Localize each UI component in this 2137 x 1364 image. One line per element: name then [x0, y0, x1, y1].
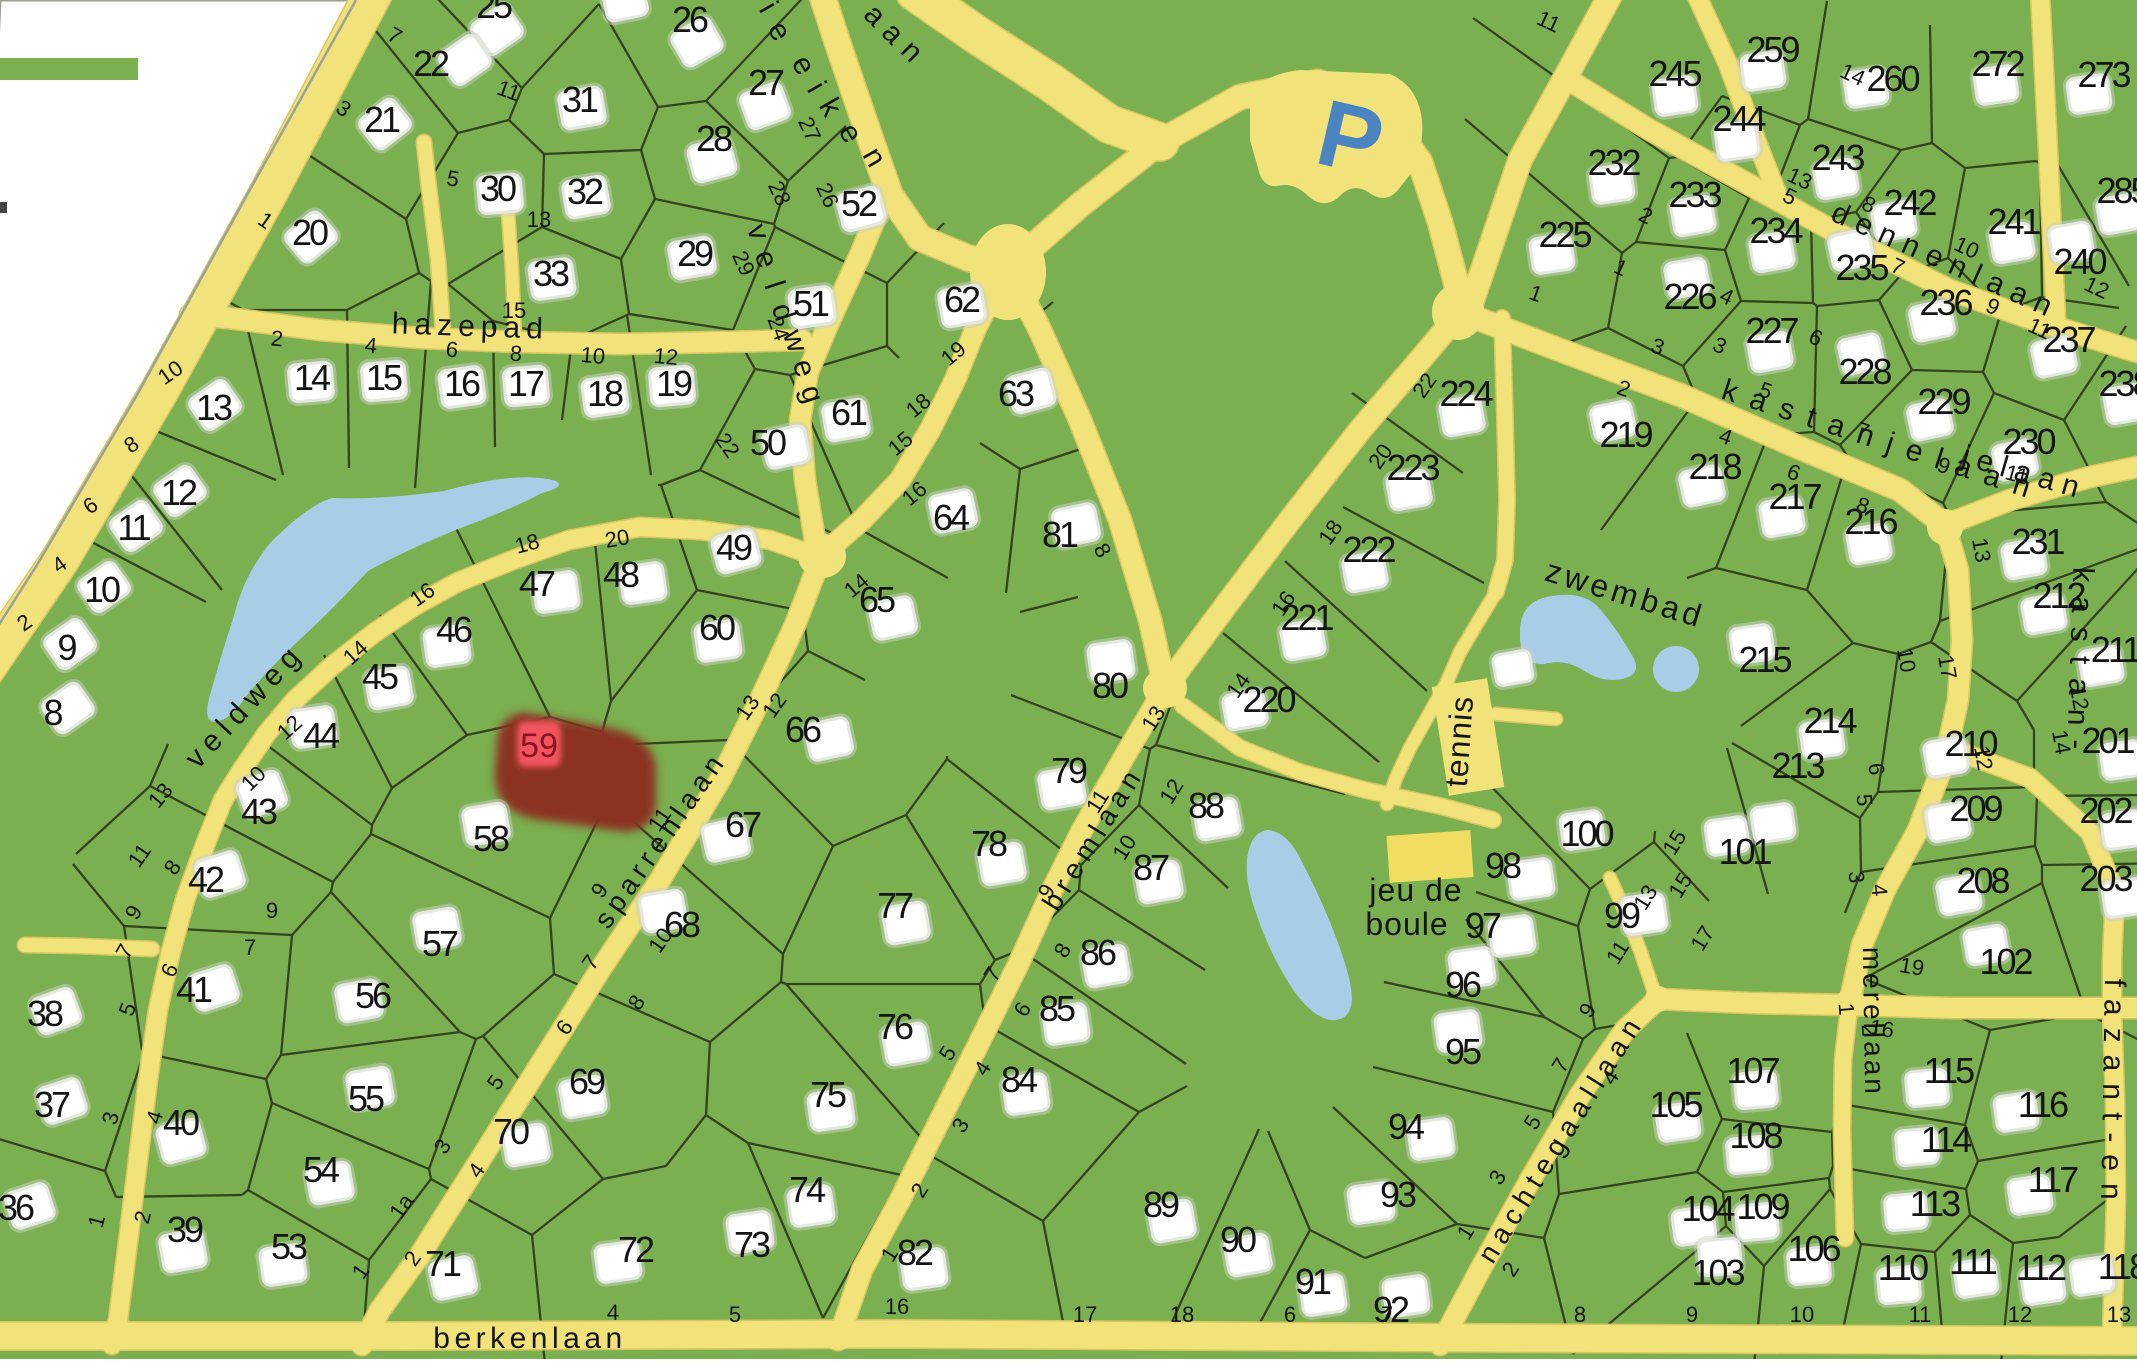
- svg-text:8: 8: [43, 692, 62, 733]
- svg-text:96: 96: [1445, 964, 1481, 1005]
- svg-text:233: 233: [1668, 174, 1721, 215]
- svg-text:116: 116: [2018, 1084, 2068, 1125]
- svg-text:208: 208: [1956, 860, 2009, 901]
- svg-text:90: 90: [1220, 1219, 1256, 1260]
- svg-text:45: 45: [362, 656, 398, 697]
- svg-text:222: 222: [1342, 529, 1395, 570]
- svg-text:20: 20: [292, 212, 328, 253]
- svg-text:235: 235: [1835, 247, 1888, 288]
- svg-text:228: 228: [1838, 351, 1891, 392]
- svg-text:214: 214: [1803, 700, 1856, 741]
- svg-text:6: 6: [1864, 762, 1890, 776]
- svg-text:117: 117: [2028, 1159, 2078, 1200]
- svg-text:91: 91: [1295, 1261, 1331, 1302]
- svg-text:227: 227: [1745, 310, 1798, 351]
- svg-text:79: 79: [1051, 750, 1087, 791]
- svg-text:26: 26: [672, 0, 708, 40]
- svg-text:67: 67: [725, 804, 761, 845]
- svg-text:10: 10: [580, 342, 607, 369]
- svg-text:7: 7: [244, 935, 256, 960]
- svg-text:97: 97: [1465, 905, 1501, 946]
- svg-text:77: 77: [877, 885, 913, 926]
- svg-text:202: 202: [2079, 790, 2132, 831]
- svg-text:106: 106: [1787, 1228, 1840, 1269]
- svg-text:69: 69: [569, 1061, 605, 1102]
- svg-text:5: 5: [729, 1302, 741, 1327]
- svg-text:15: 15: [366, 357, 402, 398]
- svg-text:50: 50: [750, 422, 786, 463]
- svg-text:48: 48: [603, 554, 639, 595]
- svg-text:229: 229: [1917, 381, 1970, 422]
- svg-text:12: 12: [161, 472, 197, 513]
- svg-text:231: 231: [2011, 521, 2064, 562]
- svg-text:243: 243: [1811, 137, 1864, 178]
- svg-text:12: 12: [2008, 1302, 2032, 1327]
- svg-text:10: 10: [84, 569, 120, 610]
- svg-text:114: 114: [1921, 1119, 1971, 1160]
- svg-text:54: 54: [303, 1149, 339, 1190]
- svg-text:1: 1: [1834, 1002, 1860, 1016]
- svg-text:4: 4: [364, 333, 378, 359]
- svg-text:29: 29: [677, 233, 713, 274]
- svg-text:13: 13: [1967, 536, 1996, 564]
- svg-text:41: 41: [176, 969, 212, 1010]
- svg-text:98: 98: [1485, 845, 1521, 886]
- svg-text:111: 111: [1949, 1241, 1997, 1282]
- svg-text:219: 219: [1599, 414, 1652, 455]
- svg-text:209: 209: [1949, 788, 2002, 829]
- svg-text:70: 70: [493, 1111, 529, 1152]
- svg-text:56: 56: [355, 975, 391, 1016]
- svg-text:merellaan: merellaan: [1857, 947, 1891, 1097]
- svg-text:17: 17: [508, 363, 544, 404]
- svg-text:234: 234: [1749, 210, 1802, 251]
- svg-text:55: 55: [348, 1078, 384, 1119]
- svg-text:63: 63: [998, 373, 1034, 414]
- svg-text:87: 87: [1133, 847, 1169, 888]
- svg-text:64: 64: [933, 497, 969, 538]
- svg-text:259: 259: [1746, 29, 1799, 70]
- svg-text:215: 215: [1738, 639, 1791, 680]
- svg-text:11: 11: [1909, 1302, 1932, 1327]
- svg-text:4: 4: [1867, 883, 1893, 897]
- svg-text:74: 74: [789, 1169, 825, 1210]
- svg-text:226: 226: [1663, 276, 1716, 317]
- svg-text:285: 285: [2096, 170, 2137, 211]
- svg-text:8: 8: [1574, 1302, 1586, 1327]
- svg-text:241: 241: [1987, 201, 2040, 242]
- svg-text:47: 47: [519, 563, 555, 604]
- svg-text:10: 10: [1790, 1302, 1814, 1327]
- svg-text:93: 93: [1380, 1174, 1416, 1215]
- svg-text:38: 38: [27, 993, 63, 1034]
- svg-text:203: 203: [2079, 858, 2132, 899]
- svg-text:21: 21: [364, 99, 400, 140]
- svg-text:12: 12: [653, 343, 680, 370]
- svg-text:102: 102: [1979, 941, 2032, 982]
- svg-text:kastan-: kastan-: [2060, 567, 2100, 764]
- svg-text:244: 244: [1712, 98, 1765, 139]
- svg-text:273: 273: [2077, 54, 2130, 95]
- svg-text:78: 78: [971, 823, 1007, 864]
- svg-text:18: 18: [1170, 1302, 1194, 1327]
- svg-text:25: 25: [476, 0, 512, 26]
- svg-text:245: 245: [1648, 53, 1701, 94]
- svg-text:216: 216: [1844, 501, 1897, 542]
- svg-text:112: 112: [2016, 1247, 2066, 1288]
- svg-text:57: 57: [422, 923, 458, 964]
- svg-text:13: 13: [2107, 1302, 2131, 1327]
- svg-text:224: 224: [1439, 373, 1492, 414]
- svg-text:88: 88: [1188, 785, 1224, 826]
- svg-text:43: 43: [241, 791, 277, 832]
- svg-text:86: 86: [1080, 932, 1116, 973]
- svg-text:27: 27: [748, 62, 784, 103]
- svg-text:13: 13: [527, 207, 551, 232]
- svg-text:46: 46: [436, 609, 472, 650]
- svg-text:33: 33: [533, 253, 569, 294]
- svg-text:94: 94: [1388, 1106, 1424, 1147]
- svg-text:89: 89: [1143, 1184, 1179, 1225]
- svg-text:10: 10: [1892, 646, 1921, 674]
- svg-text:108: 108: [1729, 1115, 1782, 1156]
- svg-text:75: 75: [810, 1074, 846, 1115]
- svg-text:20: 20: [603, 524, 631, 553]
- svg-text:225: 225: [1538, 214, 1591, 255]
- svg-text:hazepad: hazepad: [391, 307, 549, 345]
- svg-text:6: 6: [1284, 1302, 1296, 1327]
- svg-text:62: 62: [944, 279, 980, 320]
- svg-text:60: 60: [699, 607, 735, 648]
- svg-text:72: 72: [618, 1229, 654, 1270]
- svg-text:2: 2: [270, 326, 284, 352]
- svg-text:238: 238: [2098, 363, 2137, 404]
- svg-text:44: 44: [303, 715, 339, 756]
- svg-text:jeu de: jeu de: [1368, 872, 1462, 908]
- svg-text:39: 39: [167, 1209, 203, 1250]
- svg-text:17: 17: [1073, 1302, 1097, 1327]
- svg-text:232: 232: [1587, 142, 1640, 183]
- svg-text:9: 9: [266, 898, 278, 923]
- svg-text:100: 100: [1560, 813, 1613, 854]
- svg-text:84: 84: [1001, 1059, 1037, 1100]
- svg-text:28: 28: [696, 118, 732, 159]
- svg-text:61: 61: [831, 392, 867, 433]
- svg-text:76: 76: [877, 1006, 913, 1047]
- svg-text:40: 40: [163, 1102, 199, 1143]
- svg-text:58: 58: [473, 818, 509, 859]
- svg-text:boule: boule: [1365, 906, 1448, 942]
- svg-text:16: 16: [885, 1294, 909, 1319]
- svg-text:101: 101: [1718, 831, 1771, 872]
- svg-text:16: 16: [444, 363, 480, 404]
- svg-text:31: 31: [562, 79, 598, 120]
- svg-text:95: 95: [1445, 1031, 1481, 1072]
- svg-text:9: 9: [57, 627, 76, 668]
- svg-text:260: 260: [1866, 58, 1919, 99]
- svg-text:110: 110: [1878, 1247, 1928, 1288]
- svg-text:85: 85: [1039, 988, 1075, 1029]
- svg-text:81: 81: [1042, 514, 1078, 555]
- svg-text:236: 236: [1919, 282, 1972, 323]
- svg-text:218: 218: [1688, 446, 1741, 487]
- svg-text:213: 213: [1771, 745, 1824, 786]
- svg-text:242: 242: [1883, 182, 1936, 223]
- svg-text:17: 17: [1933, 653, 1962, 681]
- svg-text:37: 37: [34, 1084, 70, 1125]
- svg-text:103: 103: [1691, 1252, 1744, 1293]
- svg-text:113: 113: [1910, 1183, 1960, 1224]
- svg-text:30: 30: [480, 168, 516, 209]
- svg-text:59: 59: [520, 727, 558, 765]
- svg-text:52: 52: [841, 183, 877, 224]
- svg-text:19: 19: [1898, 952, 1926, 981]
- svg-text:42: 42: [188, 859, 224, 900]
- svg-text:80: 80: [1092, 665, 1128, 706]
- svg-text:32: 32: [567, 171, 603, 212]
- svg-text:12: 12: [1969, 744, 1998, 772]
- svg-text:71: 71: [425, 1243, 461, 1284]
- svg-text:53: 53: [271, 1226, 307, 1267]
- svg-text:fazant-en: fazant-en: [2094, 978, 2131, 1212]
- svg-text:272: 272: [1971, 43, 2024, 84]
- svg-text:5: 5: [1852, 793, 1878, 807]
- svg-text:22: 22: [413, 43, 449, 84]
- svg-text:73: 73: [734, 1224, 770, 1265]
- svg-text:118: 118: [2098, 1246, 2137, 1287]
- svg-text:109: 109: [1736, 1186, 1789, 1227]
- svg-text:107: 107: [1726, 1050, 1779, 1091]
- svg-text:115: 115: [1924, 1050, 1974, 1091]
- svg-text:104: 104: [1681, 1188, 1734, 1229]
- svg-text:49: 49: [716, 527, 752, 568]
- svg-text:13: 13: [196, 387, 232, 428]
- svg-text:82: 82: [897, 1232, 933, 1273]
- svg-text:14: 14: [294, 357, 330, 398]
- svg-text:11: 11: [117, 507, 150, 548]
- svg-text:66: 66: [785, 709, 821, 750]
- svg-text:105: 105: [1649, 1084, 1702, 1125]
- svg-text:berkenlaan: berkenlaan: [433, 1322, 626, 1355]
- svg-text:tennis: tennis: [1438, 694, 1480, 788]
- svg-text:7: 7: [1381, 1302, 1393, 1327]
- svg-text:9: 9: [1686, 1302, 1698, 1327]
- svg-text:18: 18: [587, 373, 623, 414]
- svg-text:36: 36: [0, 1187, 34, 1228]
- svg-text:3: 3: [1844, 870, 1870, 884]
